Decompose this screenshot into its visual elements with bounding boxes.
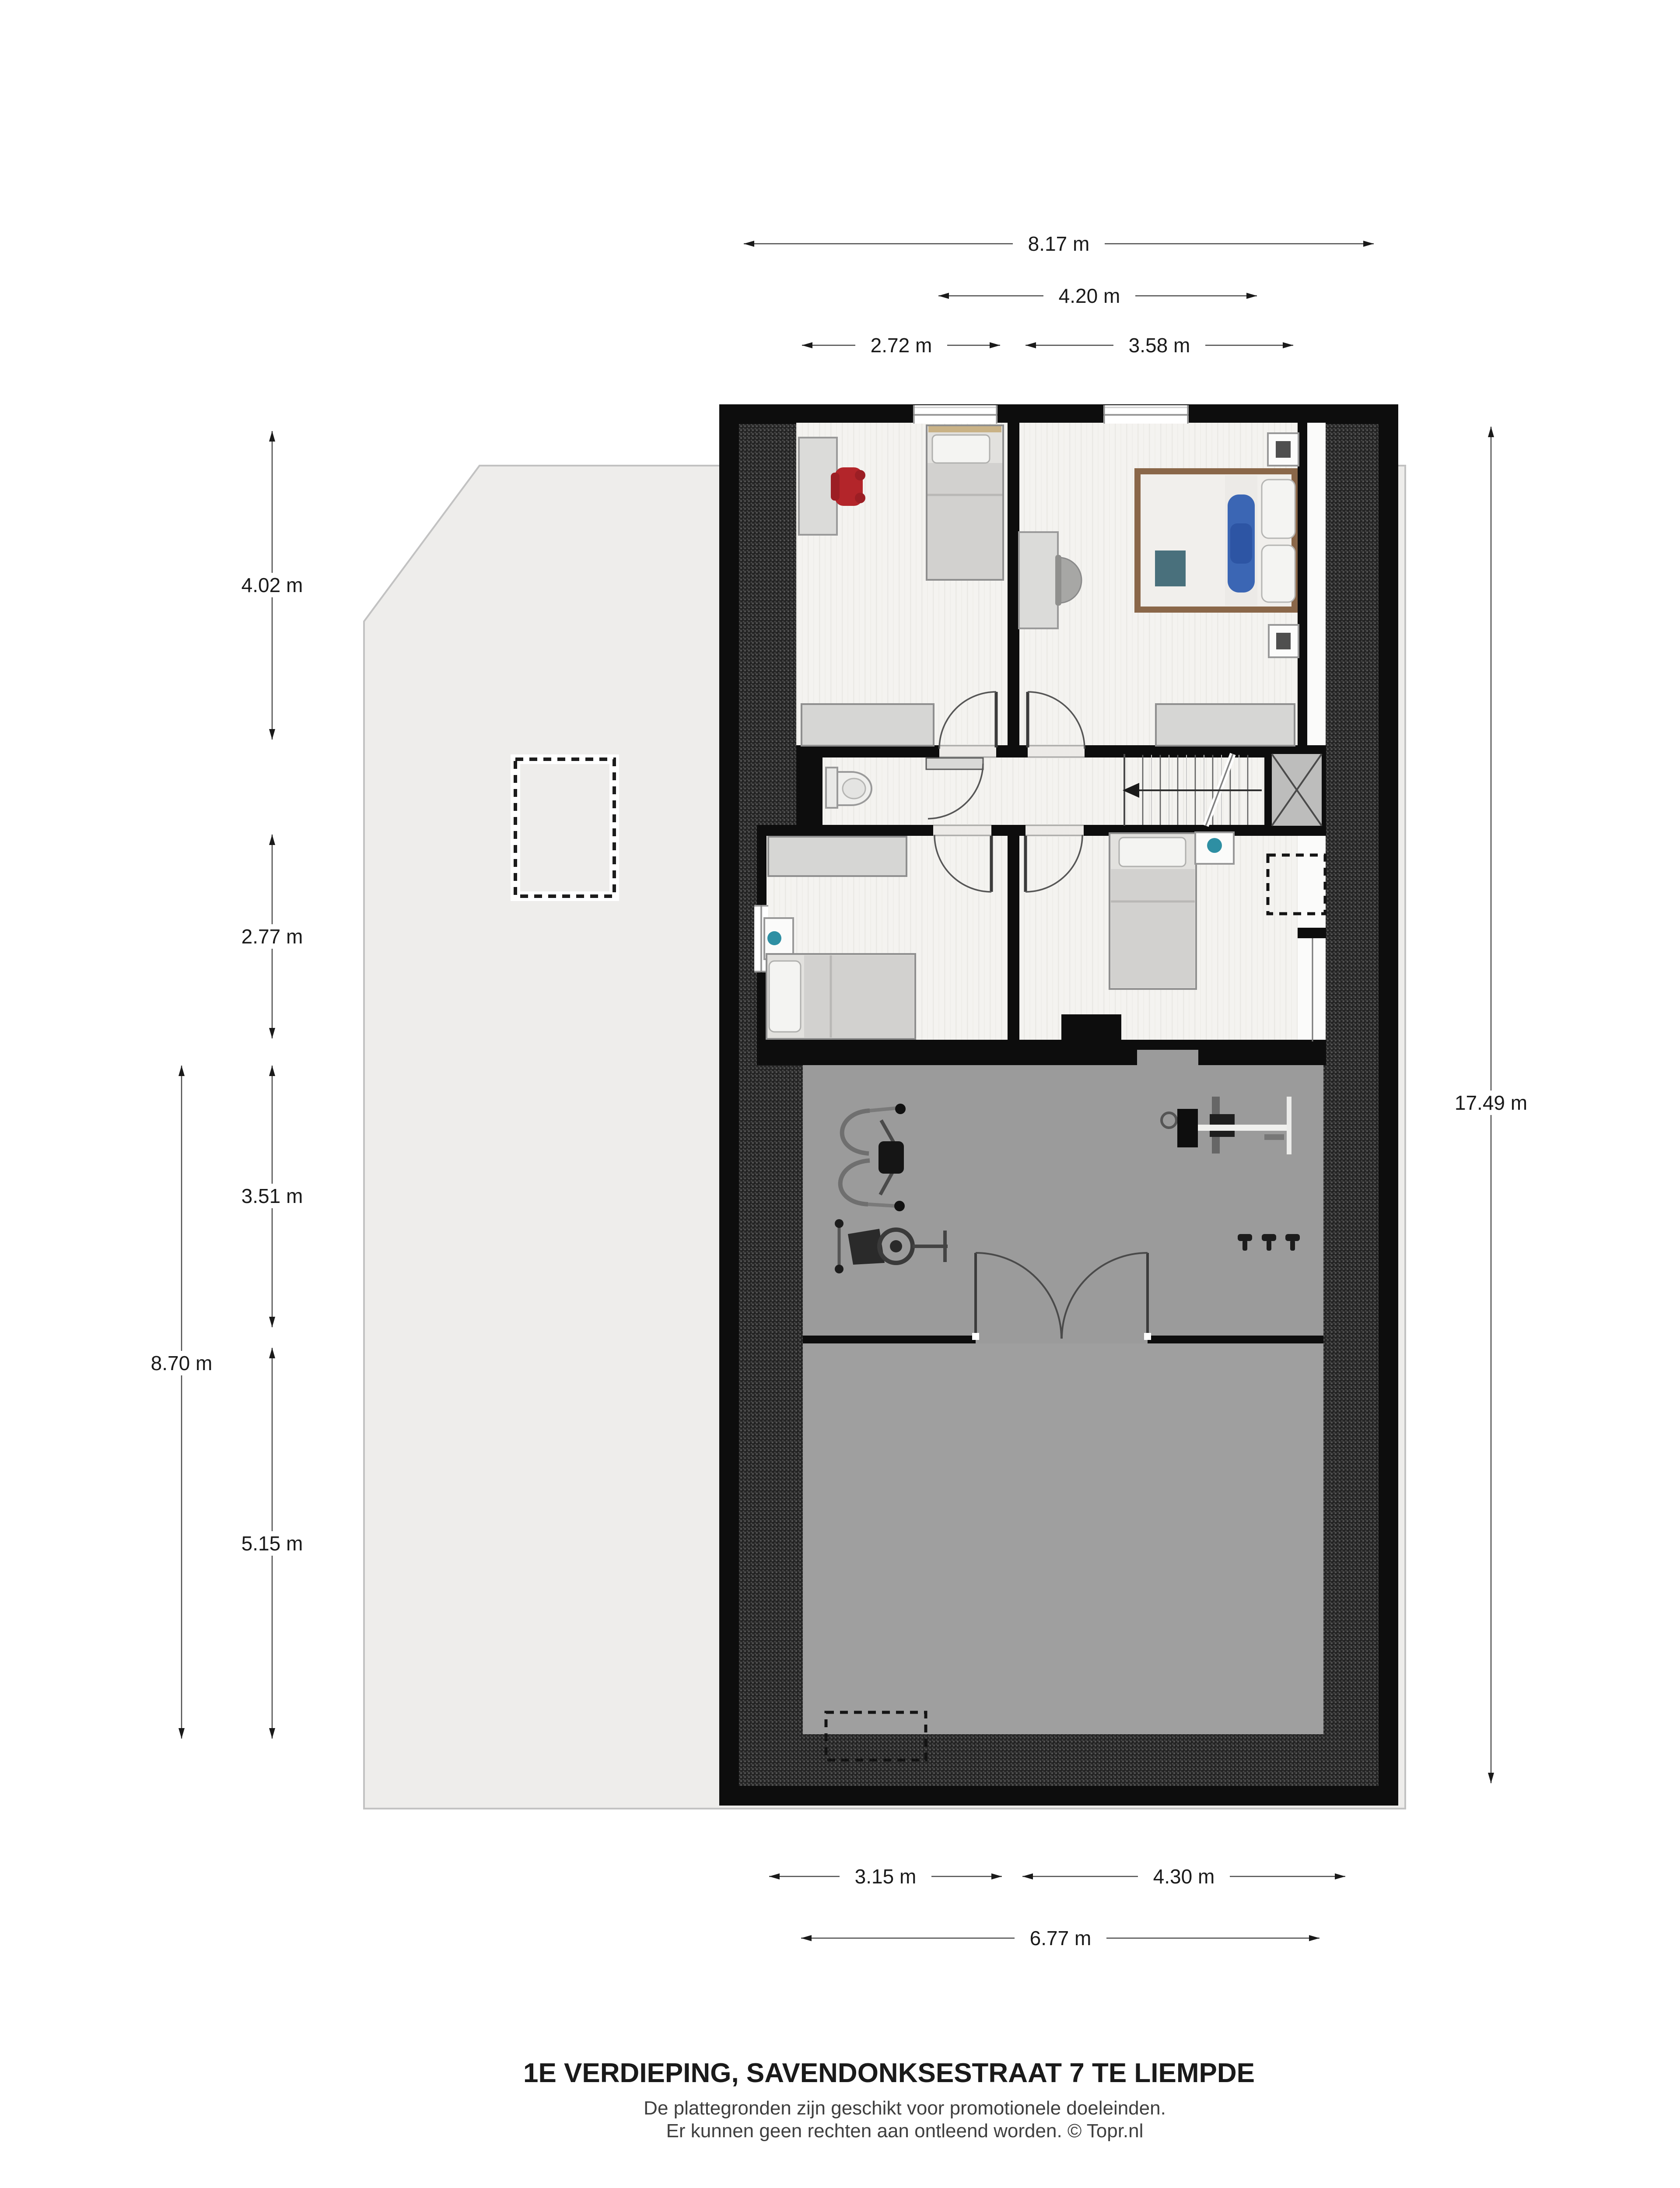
svg-text:4.02 m: 4.02 m [241, 574, 303, 596]
svg-text:Er kunnen geen rechten aan ont: Er kunnen geen rechten aan ontleend word… [666, 2120, 1144, 2142]
svg-text:2.77 m: 2.77 m [241, 925, 303, 948]
svg-text:4.30 m: 4.30 m [1153, 1865, 1215, 1888]
svg-text:De plattegronden zijn geschikt: De plattegronden zijn geschikt voor prom… [644, 2097, 1166, 2119]
svg-text:17.49 m: 17.49 m [1455, 1091, 1527, 1114]
svg-text:3.15 m: 3.15 m [855, 1865, 917, 1888]
svg-text:4.20 m: 4.20 m [1059, 284, 1120, 307]
svg-text:8.70 m: 8.70 m [151, 1352, 213, 1375]
svg-text:6.77 m: 6.77 m [1030, 1927, 1092, 1950]
svg-text:3.51 m: 3.51 m [241, 1185, 303, 1207]
svg-text:5.15 m: 5.15 m [241, 1532, 303, 1555]
svg-text:2.72 m: 2.72 m [871, 334, 932, 357]
svg-text:3.58 m: 3.58 m [1129, 334, 1190, 357]
svg-text:8.17 m: 8.17 m [1028, 232, 1090, 255]
svg-text:1E VERDIEPING, SAVENDONKSESTRA: 1E VERDIEPING, SAVENDONKSESTRAAT 7 TE LI… [523, 2058, 1255, 2088]
